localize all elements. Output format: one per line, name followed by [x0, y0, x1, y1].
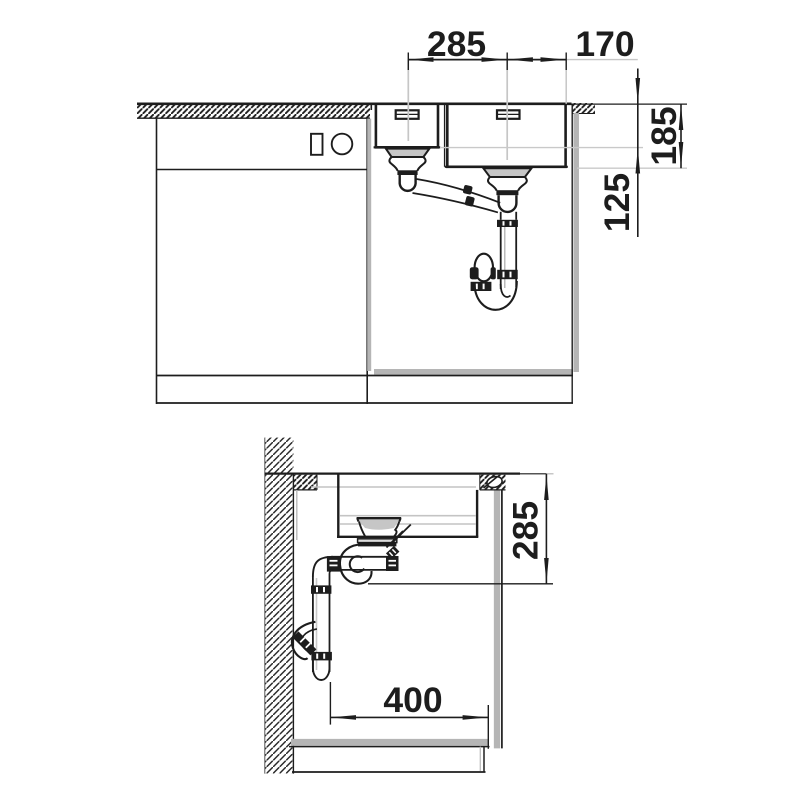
svg-text:170: 170 [575, 24, 634, 64]
svg-text:285: 285 [506, 501, 546, 560]
svg-text:400: 400 [383, 680, 442, 720]
svg-text:285: 285 [427, 24, 486, 64]
svg-text:185: 185 [644, 106, 684, 165]
svg-text:125: 125 [597, 173, 637, 232]
